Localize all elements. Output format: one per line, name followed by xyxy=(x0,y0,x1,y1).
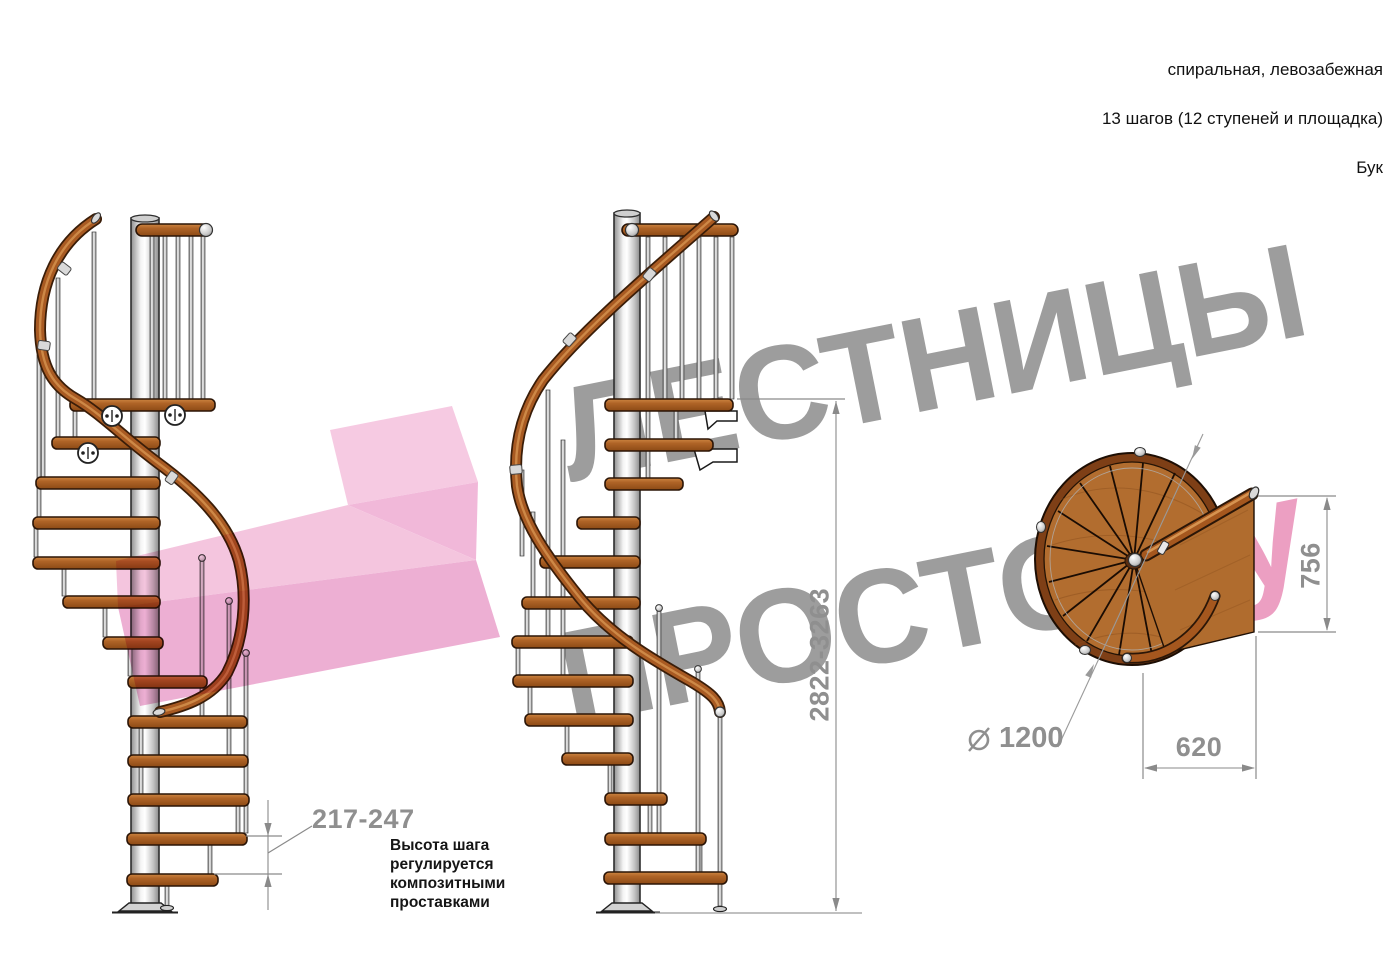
step-note: Высота шага регулируется композитными пр… xyxy=(390,837,505,913)
diameter-icon xyxy=(966,725,992,753)
spec-type: спиральная, левозабежная xyxy=(1102,58,1383,83)
diameter-label: 1200 xyxy=(966,722,1064,755)
landing-width-label: 620 xyxy=(1159,732,1239,763)
spec-header: спиральная, левозабежная 13 шагов (12 ст… xyxy=(1102,33,1383,205)
blueprint-canvas: ЛЕСТНИЦЫ ПРОСТО.ру xyxy=(0,0,1400,961)
total-height-label: 2822-3263 xyxy=(805,592,836,722)
diameter-value: 1200 xyxy=(999,722,1064,755)
spec-steps: 13 шагов (12 ступеней и площадка) xyxy=(1102,107,1383,132)
landing-depth-label: 756 xyxy=(1296,536,1327,596)
spec-material: Бук xyxy=(1102,156,1383,181)
step-height-label: 217-247 xyxy=(312,804,415,835)
